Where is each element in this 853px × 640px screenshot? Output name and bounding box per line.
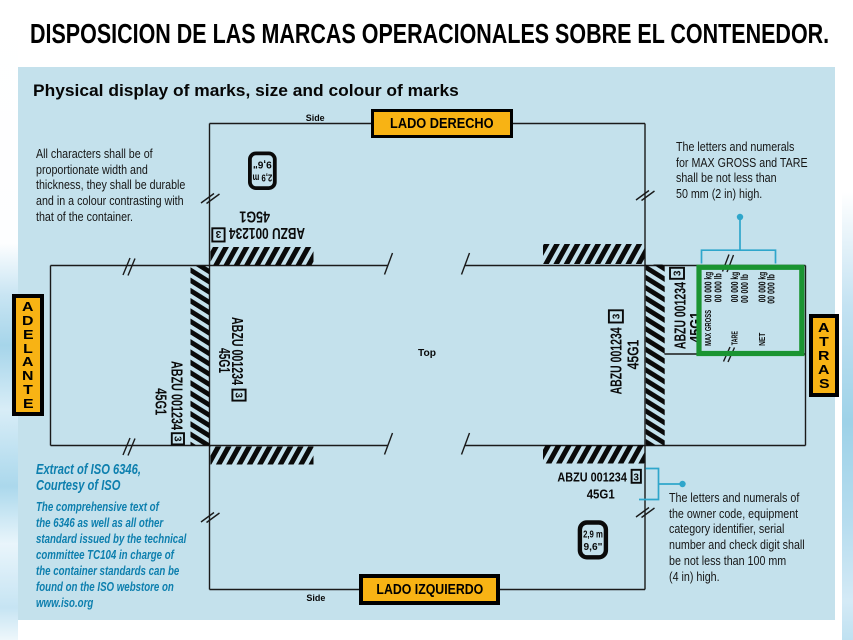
svg-text:ABZU 001234: ABZU 001234: [229, 224, 305, 241]
svg-text:Side: Side: [306, 113, 325, 124]
svg-text:ABZU 001234: ABZU 001234: [608, 327, 625, 394]
svg-text:9,6": 9,6": [584, 542, 603, 553]
svg-text:45G1: 45G1: [587, 486, 615, 501]
svg-text:45G1: 45G1: [239, 207, 270, 224]
svg-text:9,6": 9,6": [253, 159, 272, 170]
svg-text:45G1: 45G1: [626, 339, 643, 369]
svg-text:MAX GROSS: MAX GROSS: [703, 310, 713, 346]
svg-text:00 000 lb: 00 000 lb: [714, 273, 725, 302]
svg-text:3: 3: [171, 436, 182, 442]
svg-text:3: 3: [233, 392, 244, 398]
svg-text:3: 3: [215, 228, 221, 239]
svg-text:NET: NET: [757, 333, 767, 346]
svg-text:ABZU 001234: ABZU 001234: [557, 469, 627, 484]
svg-text:45G1: 45G1: [215, 348, 232, 373]
svg-text:00 000 lb: 00 000 lb: [740, 274, 751, 303]
svg-text:Side: Side: [306, 593, 325, 604]
svg-text:2,9 m: 2,9 m: [252, 172, 272, 183]
svg-text:3: 3: [673, 270, 684, 276]
svg-text:ABZU 001234: ABZU 001234: [673, 282, 690, 349]
svg-text:45G1: 45G1: [152, 388, 169, 415]
svg-text:Top: Top: [418, 347, 436, 359]
svg-text:TARE: TARE: [730, 331, 740, 345]
svg-text:2,9 m: 2,9 m: [583, 530, 603, 541]
svg-text:ABZU 001234: ABZU 001234: [168, 361, 185, 430]
svg-text:3: 3: [633, 473, 639, 484]
svg-text:3: 3: [611, 313, 622, 319]
svg-text:00 000 lb: 00 000 lb: [767, 274, 778, 304]
